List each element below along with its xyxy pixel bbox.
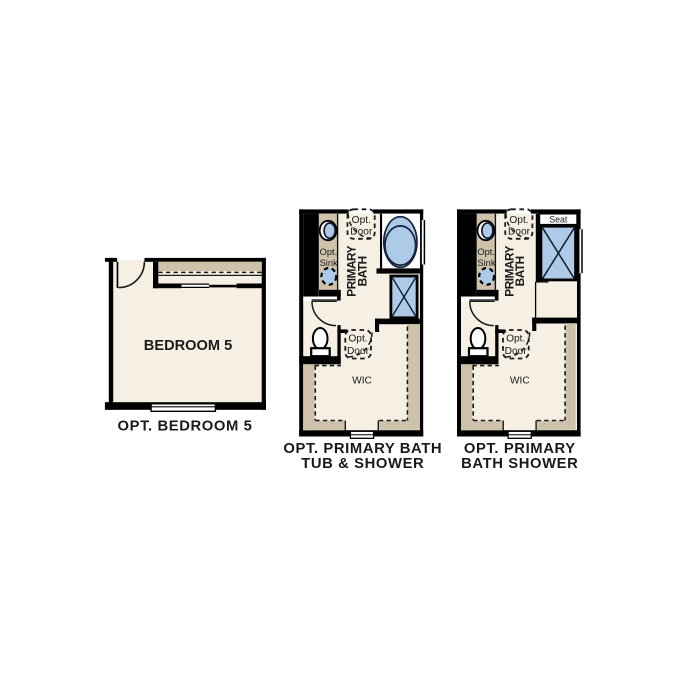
svg-text:Sink: Sink — [320, 258, 338, 268]
svg-text:Opt.: Opt. — [506, 334, 525, 345]
svg-text:Opt.: Opt. — [509, 215, 528, 226]
svg-text:WIC: WIC — [510, 375, 530, 386]
svg-text:BEDROOM 5: BEDROOM 5 — [144, 338, 232, 354]
svg-text:WIC: WIC — [352, 375, 372, 386]
svg-text:OPT. PRIMARY BATH: OPT. PRIMARY BATH — [283, 441, 442, 457]
svg-text:Sink: Sink — [477, 258, 495, 268]
svg-text:Door: Door — [505, 346, 528, 357]
svg-text:TUB & SHOWER: TUB & SHOWER — [301, 456, 424, 472]
svg-text:Opt.: Opt. — [320, 247, 338, 257]
svg-text:BATH: BATH — [513, 256, 527, 286]
svg-text:BATH SHOWER: BATH SHOWER — [461, 456, 578, 472]
svg-text:Opt.: Opt. — [348, 334, 367, 345]
svg-text:OPT. BEDROOM 5: OPT. BEDROOM 5 — [117, 418, 252, 434]
svg-text:BATH: BATH — [355, 256, 369, 286]
svg-text:Opt.: Opt. — [352, 215, 371, 226]
svg-text:Door: Door — [508, 226, 531, 237]
svg-text:Opt.: Opt. — [477, 247, 495, 257]
svg-text:OPT. PRIMARY: OPT. PRIMARY — [464, 441, 576, 457]
svg-text:Seat: Seat — [549, 214, 568, 224]
svg-text:Door: Door — [350, 226, 373, 237]
svg-text:Door: Door — [347, 346, 370, 357]
